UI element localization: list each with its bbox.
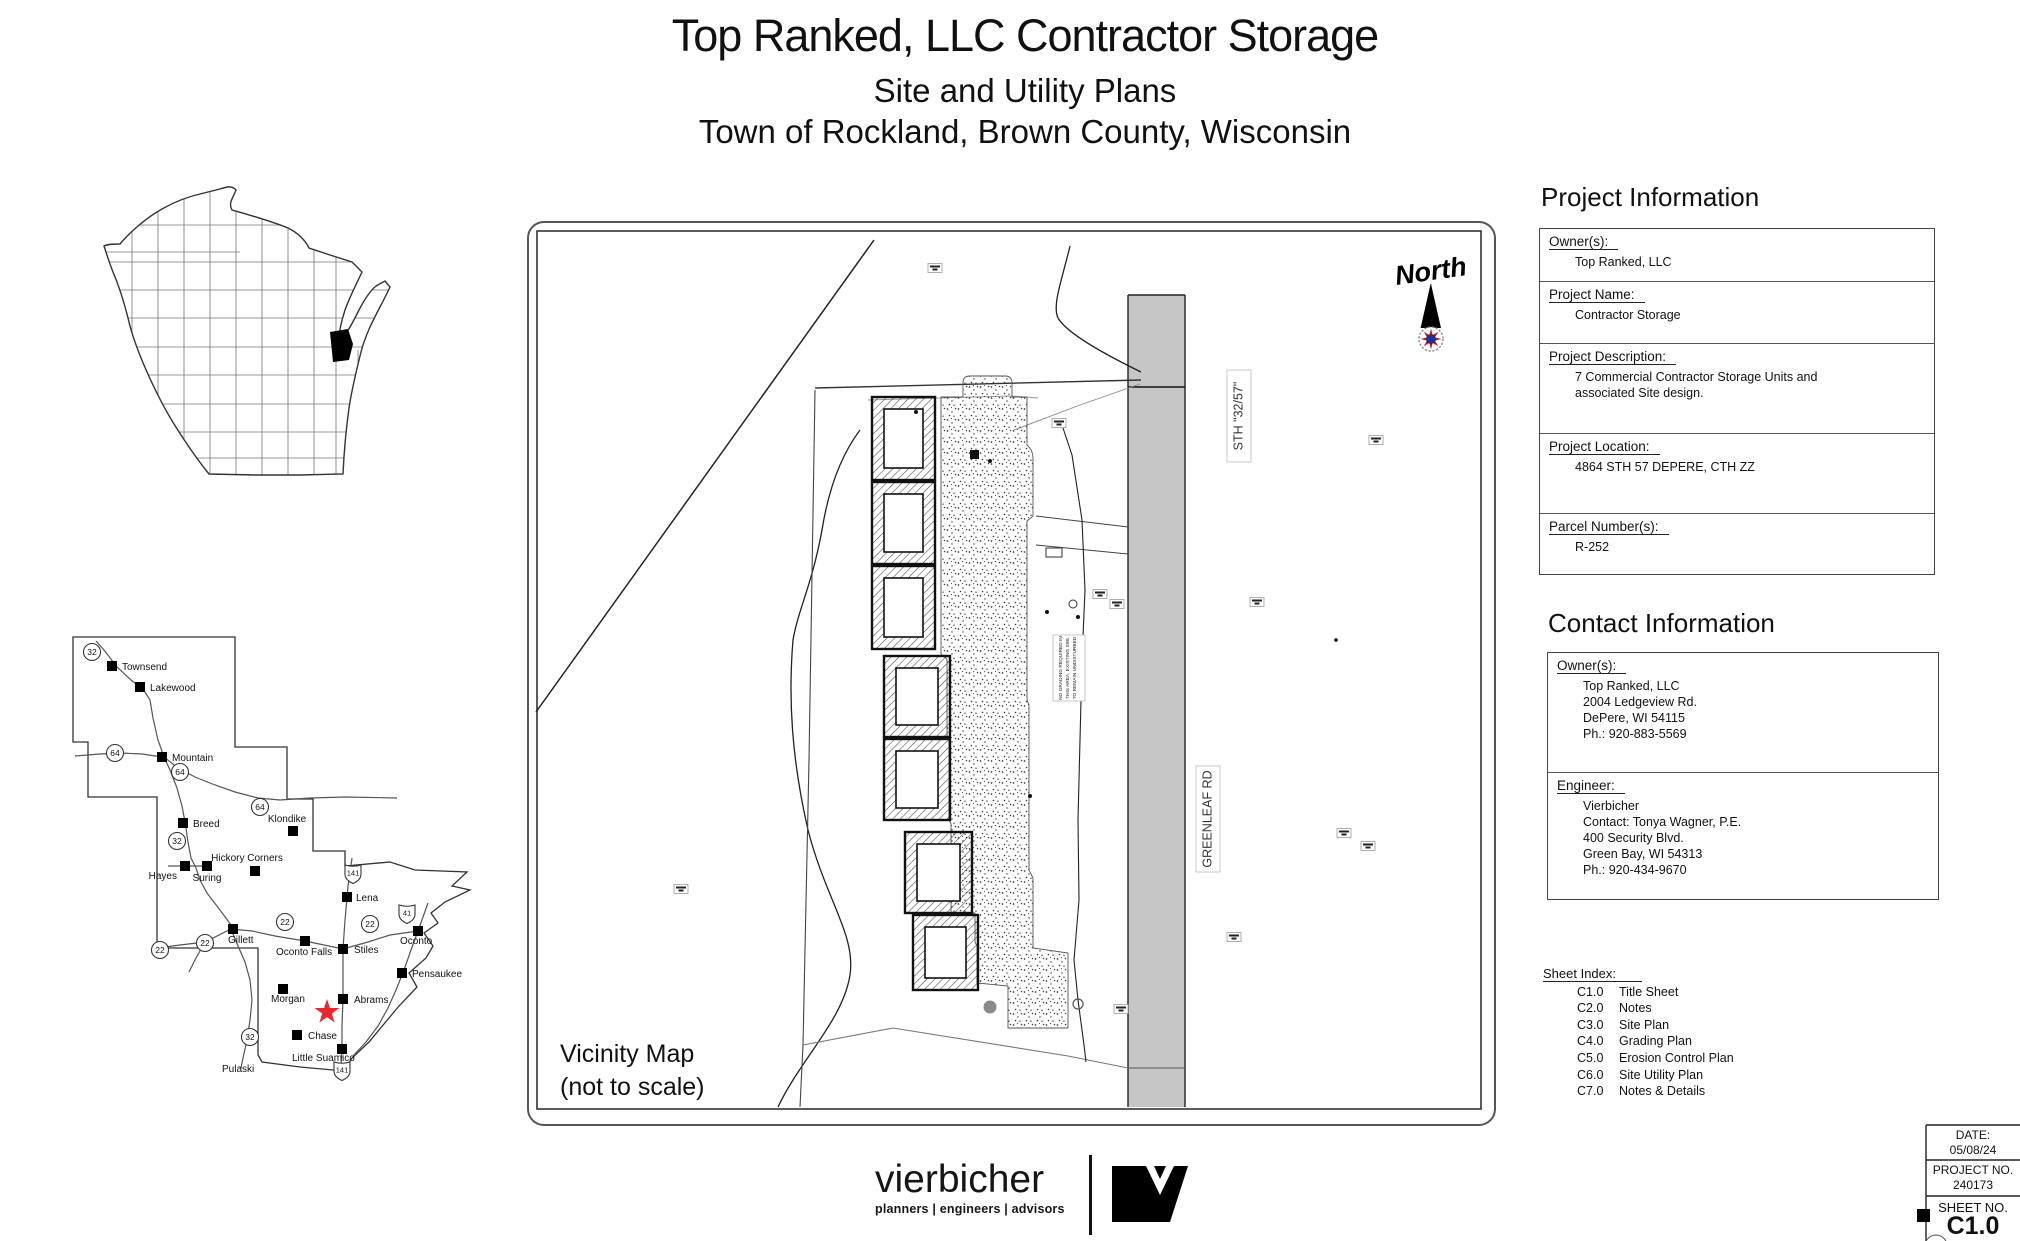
contact-information-heading: Contact Information xyxy=(1548,608,1775,639)
town-marker xyxy=(157,752,167,762)
us-route-number: 141 xyxy=(336,1066,349,1075)
sheet-no-value: C1.0 xyxy=(1926,1212,2020,1241)
sheet-index-row: C5.0Erosion Control Plan xyxy=(1543,1051,1863,1065)
sheet-name: Notes & Details xyxy=(1619,1084,1705,1098)
logo-tagline: planners | engineers | advisors xyxy=(875,1202,1065,1216)
sheet-name: Grading Plan xyxy=(1619,1034,1692,1048)
project-owner-section: Owner(s): Top Ranked, LLC xyxy=(1540,229,1934,282)
north-arrow-icon: North xyxy=(1393,251,1468,351)
utility-symbol-icon xyxy=(1337,829,1351,838)
svg-text:NO GRADING REQUIRED IN: NO GRADING REQUIRED IN xyxy=(1058,636,1064,700)
town-marker xyxy=(278,984,288,994)
town-marker xyxy=(288,826,298,836)
storage-unit xyxy=(884,739,950,820)
town-marker xyxy=(135,682,145,692)
town-marker xyxy=(180,861,190,871)
state-route-number: 22 xyxy=(365,919,375,929)
section-label: Owner(s): xyxy=(1557,658,1626,674)
state-route-number: 32 xyxy=(87,647,97,657)
town-label: Pensaukee xyxy=(412,969,462,980)
section-value: Top Ranked, LLC xyxy=(1575,254,1926,270)
date-label: DATE: xyxy=(1926,1128,2020,1142)
town-label: Hickory Corners xyxy=(211,853,283,864)
town-label: Abrams xyxy=(354,995,388,1006)
town-label: Lena xyxy=(356,893,379,904)
sheet-index-heading: Sheet Index: xyxy=(1543,966,1642,982)
contact-owner-section: Owner(s): Top Ranked, LLC 2004 Ledgeview… xyxy=(1548,653,1938,773)
road-strip xyxy=(1128,295,1185,1107)
town-label: Little Suamico xyxy=(292,1053,355,1064)
grading-note: NO GRADING REQUIRED IN THIS AREA, EXISTI… xyxy=(1053,635,1085,701)
vierbicher-logo: vierbicher planners | engineers | adviso… xyxy=(875,1158,1065,1216)
town-label: Oconto Falls xyxy=(276,947,332,958)
sheet-index-row: C6.0Site Utility Plan xyxy=(1543,1068,1863,1082)
section-value: Vierbicher xyxy=(1583,798,1930,814)
sheet-name: Notes xyxy=(1619,1001,1652,1015)
town-marker xyxy=(107,661,117,671)
sheet-number: C1.0 xyxy=(1577,985,1619,999)
town-marker xyxy=(397,968,407,978)
sheet-number: C4.0 xyxy=(1577,1034,1619,1048)
section-value: 400 Security Blvd. xyxy=(1583,830,1930,846)
town-label: Gillett xyxy=(228,935,254,946)
project-description-section: Project Description: 7 Commercial Contra… xyxy=(1540,344,1934,434)
section-label: Parcel Number(s): xyxy=(1549,519,1669,535)
town-label: Townsend xyxy=(122,662,167,673)
state-route-number: 64 xyxy=(255,802,265,812)
section-value: Contractor Storage xyxy=(1575,307,1926,323)
project-no-label: PROJECT NO. xyxy=(1926,1163,2020,1177)
logo-separator xyxy=(1089,1155,1092,1235)
utility-symbol-icon xyxy=(1361,842,1375,851)
town-marker xyxy=(292,1030,302,1040)
town-label: Pulaski xyxy=(222,1064,254,1075)
sheet-name: Site Utility Plan xyxy=(1619,1068,1703,1082)
section-value: 7 Commercial Contractor Storage Units an… xyxy=(1575,369,1926,385)
section-label: Owner(s): xyxy=(1549,234,1618,250)
utility-symbol-icon xyxy=(1110,600,1124,609)
utility-symbol-icon xyxy=(1227,933,1241,942)
state-route-number: 22 xyxy=(280,917,290,927)
town-label: Oconto xyxy=(400,936,433,947)
project-name-section: Project Name: Contractor Storage xyxy=(1540,282,1934,344)
sheet-index-row: C2.0Notes xyxy=(1543,1001,1863,1015)
svg-text:TO REMAIN UNDISTURBED: TO REMAIN UNDISTURBED xyxy=(1072,636,1078,699)
sheet-index-row: C4.0Grading Plan xyxy=(1543,1034,1863,1048)
storage-unit xyxy=(872,566,935,649)
town-label: Lakewood xyxy=(150,683,196,694)
utility-symbol-icon xyxy=(928,264,942,273)
us-route-number: 41 xyxy=(403,909,411,918)
sheet-name: Erosion Control Plan xyxy=(1619,1051,1734,1065)
compass-rose-icon xyxy=(1421,329,1442,350)
section-value: Contact: Tonya Wagner, P.E. xyxy=(1583,814,1930,830)
vicinity-caption-line2: (not to scale) xyxy=(560,1073,705,1101)
town-label: Chase xyxy=(308,1031,337,1042)
town-marker xyxy=(413,926,423,936)
section-value: 4864 STH 57 DEPERE, CTH ZZ xyxy=(1575,459,1926,475)
section-label: Project Name: xyxy=(1549,287,1645,303)
town-marker xyxy=(202,861,212,871)
town-label: Klondike xyxy=(268,814,307,825)
sheet-index-row: C1.0Title Sheet xyxy=(1543,985,1863,999)
us-route-number: 141 xyxy=(347,869,360,878)
utility-symbol-icon xyxy=(674,885,688,894)
town-label: Morgan xyxy=(271,994,305,1005)
contact-information-panel: Owner(s): Top Ranked, LLC 2004 Ledgeview… xyxy=(1547,652,1939,900)
sheet-index-row: C7.0Notes & Details xyxy=(1543,1084,1863,1098)
town-marker xyxy=(300,936,310,946)
utility-symbol-icon xyxy=(1052,419,1066,428)
sheet-number: C2.0 xyxy=(1577,1001,1619,1015)
town-label: Breed xyxy=(193,819,220,830)
sheet-name: Title Sheet xyxy=(1619,985,1678,999)
town-marker xyxy=(342,892,352,902)
storage-unit xyxy=(905,832,972,913)
section-value: associated Site design. xyxy=(1575,385,1926,401)
project-information-panel: Owner(s): Top Ranked, LLC Project Name: … xyxy=(1539,228,1935,575)
section-label: Project Location: xyxy=(1549,439,1660,455)
section-value: Ph.: 920-434-9670 xyxy=(1583,862,1930,878)
project-location-section: Project Location: 4864 STH 57 DEPERE, CT… xyxy=(1540,434,1934,514)
vicinity-caption-line1: Vicinity Map xyxy=(560,1040,694,1068)
sheet-index: Sheet Index: C1.0Title Sheet C2.0Notes C… xyxy=(1543,966,1863,1098)
section-label: Engineer: xyxy=(1557,778,1625,794)
road-labels: STH "32/57" GREENLEAF RD xyxy=(1196,370,1251,872)
storage-unit xyxy=(872,397,935,480)
project-information-heading: Project Information xyxy=(1541,182,1759,213)
town-marker xyxy=(338,944,348,954)
sheet-title: Top Ranked, LLC Contractor Storage xyxy=(480,10,1570,62)
sheet-subtitle: Site and Utility Plans xyxy=(480,72,1570,110)
sheet-number: C7.0 xyxy=(1577,1084,1619,1098)
title-sheet: { "title": { "line1": "Top Ranked, LLC C… xyxy=(0,0,2020,1241)
sth-label: STH "32/57" xyxy=(1231,382,1245,451)
vicinity-plan: STH "32/57" GREENLEAF RD NO GRADING REQU… xyxy=(526,220,1522,1137)
sheet-number: C6.0 xyxy=(1577,1068,1619,1082)
sheet-number: C3.0 xyxy=(1577,1018,1619,1032)
section-value: 2004 Ledgeview Rd. xyxy=(1583,694,1930,710)
state-route-number: 64 xyxy=(175,767,185,777)
date-value: 05/08/24 xyxy=(1926,1143,2020,1157)
town-label: Suring xyxy=(193,873,222,884)
utility-symbol-icon xyxy=(1093,590,1107,599)
state-route-number: 22 xyxy=(200,938,210,948)
town-label: Hayes xyxy=(149,871,177,882)
section-value: Green Bay, WI 54313 xyxy=(1583,846,1930,862)
vierbicher-v-icon xyxy=(1108,1163,1194,1225)
town-label: Mountain xyxy=(172,753,213,764)
utility-symbol-icon xyxy=(1250,598,1264,607)
town-marker xyxy=(228,924,238,934)
wisconsin-state-map xyxy=(93,180,405,492)
parcel-number-section: Parcel Number(s): R-252 xyxy=(1540,514,1934,572)
section-value: R-252 xyxy=(1575,539,1926,555)
town-label: Stiles xyxy=(354,945,378,956)
logo-wordmark: vierbicher xyxy=(875,1158,1065,1202)
storage-unit xyxy=(884,656,950,737)
sheet-index-row: C3.0Site Plan xyxy=(1543,1018,1863,1032)
section-value: DePere, WI 54115 xyxy=(1583,710,1930,726)
greenleaf-rd-label: GREENLEAF RD xyxy=(1200,770,1214,867)
county-grid xyxy=(93,180,405,492)
state-route-number: 22 xyxy=(155,945,165,955)
contact-engineer-section: Engineer: Vierbicher Contact: Tonya Wagn… xyxy=(1548,773,1938,899)
storage-unit xyxy=(913,915,978,990)
highlighted-brown-county xyxy=(330,329,353,362)
state-route-number: 32 xyxy=(245,1032,255,1042)
utility-symbol-icon xyxy=(1369,436,1383,445)
utility-symbol-icon xyxy=(1114,1005,1128,1014)
section-label: Project Description: xyxy=(1549,349,1676,365)
sheet-location: Town of Rockland, Brown County, Wisconsi… xyxy=(480,113,1570,151)
section-value: Ph.: 920-883-5569 xyxy=(1583,726,1930,742)
section-value: Top Ranked, LLC xyxy=(1583,678,1930,694)
state-route-number: 64 xyxy=(110,748,120,758)
project-no-value: 240173 xyxy=(1926,1178,2020,1192)
project-site-star-icon xyxy=(315,999,340,1023)
sheet-number: C5.0 xyxy=(1577,1051,1619,1065)
storage-unit xyxy=(872,482,935,564)
town-marker xyxy=(250,866,260,876)
sheet-name: Site Plan xyxy=(1619,1018,1669,1032)
county-map: TownsendLakewoodMountainBreedKlondikeHic… xyxy=(58,618,502,1092)
town-marker xyxy=(338,994,348,1004)
svg-text:THIS AREA, EXISTING SWL: THIS AREA, EXISTING SWL xyxy=(1065,637,1071,699)
state-route-number: 32 xyxy=(172,836,182,846)
town-marker xyxy=(178,818,188,828)
